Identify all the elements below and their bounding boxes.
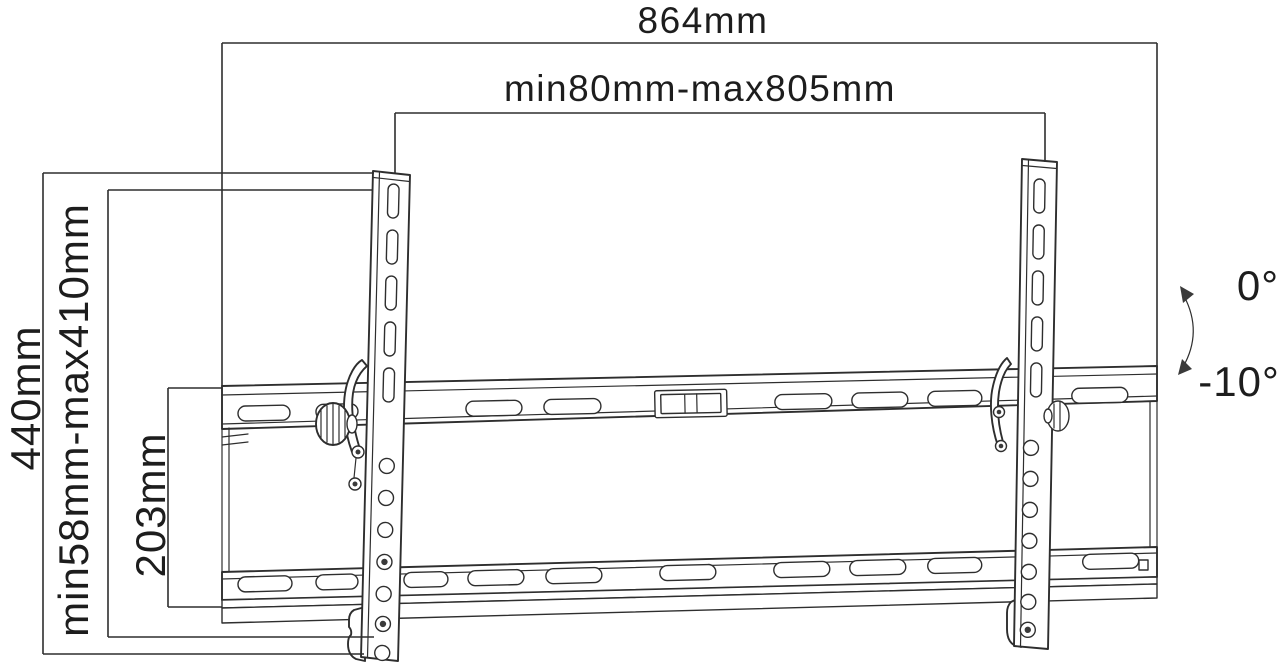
slot (384, 322, 396, 356)
spirit-level (655, 389, 728, 418)
dimension-labels: 864mm min80mm-max805mm 440mm min58mm-max… (2, 0, 1280, 637)
plate-right-side-edge (1150, 401, 1157, 548)
hole (1022, 533, 1037, 548)
slot (850, 559, 906, 575)
slot (928, 557, 982, 573)
slot (852, 392, 908, 408)
slot (1032, 271, 1044, 305)
hole (1022, 502, 1037, 517)
plate-left-side-edge (222, 428, 229, 573)
mounting-height-range-label: min58mm-max410mm (50, 203, 97, 637)
slot (546, 567, 602, 583)
pivot-bolt-center (353, 482, 358, 487)
arrowhead-up-icon (1180, 286, 1194, 303)
slot (385, 276, 397, 310)
tilt-arc-arrow (1178, 286, 1194, 375)
slot (928, 390, 982, 406)
hole (375, 645, 390, 660)
slot (774, 561, 830, 577)
slot (1072, 387, 1128, 403)
pivot-bolt-center (997, 410, 1002, 415)
hole (1023, 440, 1038, 455)
mounting-width-range-label: min80mm-max805mm (504, 68, 896, 109)
left-pivot-bolts (349, 446, 364, 490)
overall-height-label: 440mm (2, 325, 49, 470)
tilt-min-label: -10° (1198, 358, 1280, 405)
hole (1023, 471, 1038, 486)
slot (1030, 363, 1042, 397)
overall-width-label: 864mm (638, 0, 769, 41)
slot (1082, 553, 1138, 569)
slot (544, 398, 601, 414)
hole (1021, 594, 1036, 609)
slot (468, 569, 524, 585)
knob-hub (1044, 409, 1052, 423)
wall-plate-height-label: 203mm (127, 432, 174, 577)
knob-hub (347, 415, 357, 433)
slot (466, 400, 522, 416)
top-rail (222, 366, 1157, 429)
arrowhead-down-icon (1178, 359, 1192, 375)
technical-drawing-svg: 864mm min80mm-max805mm 440mm min58mm-max… (0, 0, 1280, 663)
tv-mount-dimension-diagram: 864mm min80mm-max805mm 440mm min58mm-max… (0, 0, 1280, 663)
bottom-rail-end-notch (1139, 560, 1148, 570)
slot (238, 405, 290, 421)
slot (383, 368, 395, 402)
hole (378, 490, 393, 505)
dim-plate-height-line (168, 388, 222, 607)
slot (386, 230, 398, 264)
plate-left-end-flange (222, 434, 248, 445)
hole (379, 458, 394, 473)
slot (660, 564, 716, 580)
pivot-bolt-center (356, 450, 361, 455)
slot (387, 184, 399, 218)
slot (238, 576, 292, 592)
hole (378, 522, 393, 537)
slot (775, 394, 832, 410)
slot (1034, 179, 1046, 213)
pivot-link (354, 458, 356, 478)
tilt-max-label: 0° (1237, 262, 1279, 309)
level-window (661, 393, 721, 413)
hole (1021, 564, 1036, 579)
hole (376, 586, 391, 601)
pivot-bolt-center (999, 444, 1004, 449)
slot (404, 571, 448, 587)
slot (1033, 225, 1045, 259)
tilt-arc (1183, 296, 1193, 367)
dim-mounting-width-line (395, 113, 1045, 174)
slot (1031, 317, 1043, 351)
slot (316, 574, 358, 590)
